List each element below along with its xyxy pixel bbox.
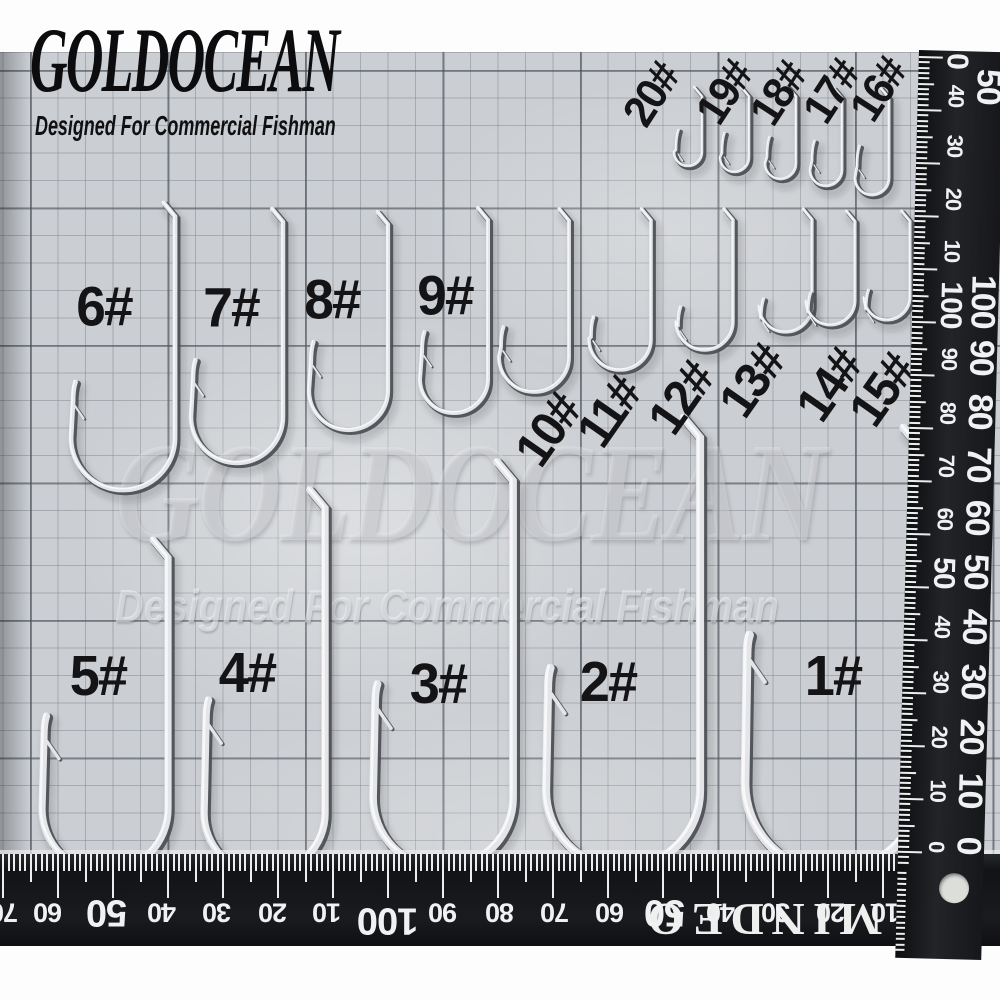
ruler-tick <box>420 854 422 871</box>
bottom-ruler-number: 60 <box>596 897 624 928</box>
ruler-tick <box>800 854 802 882</box>
ruler-tick <box>151 854 153 871</box>
ruler-tick <box>906 528 917 530</box>
ruler-tick <box>57 854 59 898</box>
ruler-tick <box>909 443 920 445</box>
ruler-tick <box>902 713 913 715</box>
fish-hook-15 <box>863 210 915 327</box>
ruler-tick <box>897 872 906 874</box>
ruler-tick <box>101 854 103 871</box>
ruler-tick <box>552 854 554 898</box>
ruler-tick <box>63 854 65 871</box>
ruler-tick <box>899 830 910 832</box>
ruler-tick <box>918 77 929 79</box>
ruler-tick <box>898 856 909 858</box>
ruler-tick <box>189 854 191 871</box>
ruler-tick <box>398 854 400 871</box>
ruler-tick <box>332 854 334 898</box>
ruler-tick <box>244 854 246 871</box>
ruler-tick <box>767 854 769 871</box>
ruler-tick <box>918 98 929 100</box>
ruler-tick <box>908 459 919 461</box>
ruler-tick <box>917 130 928 132</box>
hook-size-label-4: 4# <box>219 640 275 706</box>
ruler-tick <box>393 854 395 871</box>
ruler-tick <box>902 702 913 704</box>
ruler-tick <box>912 310 923 312</box>
ruler-tick <box>860 854 862 871</box>
ruler-tick <box>901 750 912 752</box>
ruler-tick <box>897 888 906 890</box>
ruler-tick <box>107 854 109 871</box>
ruler-tick <box>905 565 916 567</box>
ruler-tick <box>266 854 268 871</box>
ruler-tick <box>24 854 26 871</box>
ruler-tick <box>536 854 538 871</box>
ruler-tick <box>913 273 924 275</box>
ruler-tick <box>497 854 499 898</box>
ruler-tick <box>701 854 703 871</box>
ruler-tick <box>914 247 925 249</box>
ruler-tick <box>896 916 905 918</box>
ruler-tick <box>905 581 916 583</box>
right-ruler-edge-number: 50 <box>955 553 995 590</box>
ruler-tick <box>761 854 763 871</box>
ruler-tick <box>903 671 914 673</box>
ruler-tick <box>916 173 927 175</box>
ruler-tick <box>901 718 917 720</box>
ruler-tick <box>917 114 928 116</box>
ruler-tick <box>96 854 98 871</box>
ruler-tick <box>909 411 920 413</box>
ruler-tick <box>508 854 510 871</box>
ruler-tick <box>912 316 923 318</box>
ruler-tick <box>913 289 924 291</box>
right-ruler-number: 0 <box>940 53 974 70</box>
ruler-tick <box>908 485 919 487</box>
ruler-hang-hole <box>939 873 970 904</box>
hook-size-label-3: 3# <box>410 651 466 717</box>
ruler-tick <box>739 854 741 871</box>
ruler-tick <box>613 854 615 871</box>
bottom-ruler-number: 100 <box>358 899 418 942</box>
ruler-tick <box>910 390 921 392</box>
ruler-tick <box>673 854 675 871</box>
ruler-tick <box>911 353 922 355</box>
ruler-tick <box>908 469 919 471</box>
ruler-tick <box>907 522 918 524</box>
ruler-tick <box>750 854 752 871</box>
bottom-ruler-number: 70 <box>541 897 569 928</box>
ruler-tick <box>310 854 312 871</box>
ruler-tick <box>915 204 926 206</box>
ruler-tick <box>907 517 918 519</box>
ruler-tick <box>913 284 924 286</box>
ruler-tick <box>30 854 32 882</box>
ruler-tick <box>668 854 670 871</box>
ruler-tick <box>900 792 911 794</box>
ruler-tick <box>907 512 918 514</box>
ruler-tick <box>684 854 686 871</box>
ruler-tick <box>906 538 917 540</box>
ruler-tick <box>376 854 378 871</box>
ruler-tick <box>911 369 922 371</box>
ruler-tick <box>914 252 925 254</box>
ruler-tick <box>896 910 905 912</box>
ruler-tick <box>915 194 926 196</box>
ruler-tick <box>910 406 921 408</box>
ruler-tick <box>79 854 81 871</box>
ruler-tick <box>822 854 824 871</box>
right-ruler-number: 30 <box>927 670 954 693</box>
ruler-tick <box>904 633 915 635</box>
ruler-tick <box>899 803 910 805</box>
ruler-tick <box>74 854 76 871</box>
ruler-tick <box>167 854 169 898</box>
ruler-tick <box>90 854 92 871</box>
right-ruler-number: 80 <box>934 401 961 424</box>
ruler-tick <box>898 835 909 837</box>
ruler-tick <box>901 739 912 741</box>
ruler-tick <box>200 854 202 871</box>
ruler-tick <box>646 854 648 871</box>
ruler-tick <box>778 854 780 871</box>
ruler-tick <box>917 120 928 122</box>
ruler-tick <box>811 854 813 871</box>
ruler-tick <box>904 612 920 614</box>
ruler-tick <box>184 854 186 871</box>
ruler-tick <box>640 854 642 871</box>
bottom-ruler-number: 20 <box>259 897 287 928</box>
ruler-tick <box>563 854 565 871</box>
ruler-tick <box>129 854 131 871</box>
ruler-tick <box>882 854 884 898</box>
ruler-tick <box>629 854 631 871</box>
right-ruler-edge-number: 0 <box>948 836 987 855</box>
ruler-tick <box>909 437 920 439</box>
ruler-tick <box>261 854 263 871</box>
ruler-tick <box>35 854 37 871</box>
ruler-tick <box>897 894 906 896</box>
ruler-tick <box>123 854 125 871</box>
ruler-tick <box>437 854 439 871</box>
fish-hook-2 <box>544 416 705 875</box>
ruler-tick <box>299 854 301 871</box>
ruler-tick <box>255 854 257 871</box>
ruler-tick <box>618 854 620 871</box>
ruler-tick <box>789 854 791 871</box>
ruler-tick <box>904 628 915 630</box>
ruler-tick <box>222 854 224 898</box>
ruler-tick <box>900 782 911 784</box>
ruler-tick <box>68 854 70 871</box>
ruler-tick <box>905 602 916 604</box>
ruler-tick <box>903 649 914 651</box>
ruler-tick <box>897 905 906 907</box>
ruler-tick <box>897 899 906 901</box>
ruler-tick <box>145 854 147 871</box>
ruler-tick <box>492 854 494 871</box>
ruler-tick <box>233 854 235 871</box>
bottom-ruler-number: 20 <box>817 897 845 928</box>
ruler-tick <box>914 257 925 259</box>
ruler-tick <box>914 241 930 243</box>
ruler-tick <box>910 395 921 397</box>
ruler-tick <box>569 854 571 871</box>
ruler-tick <box>916 146 927 148</box>
ruler-tick <box>910 374 934 377</box>
fish-hook-10 <box>498 208 574 399</box>
ruler-tick <box>206 854 208 871</box>
right-ruler-edge-number: 100 <box>962 274 1000 329</box>
ruler-tick <box>906 554 917 556</box>
ruler-tick <box>855 854 857 882</box>
ruler-tick <box>900 755 911 757</box>
hook-size-label-5: 5# <box>70 643 126 709</box>
ruler-tick <box>902 697 913 699</box>
ruler-tick <box>140 854 142 882</box>
ruler-tick <box>901 724 912 726</box>
fish-hook-6 <box>70 202 180 497</box>
ruler-tick <box>912 331 923 333</box>
ruler-tick <box>305 854 307 882</box>
fish-hook-13 <box>758 208 817 339</box>
ruler-tick <box>918 93 929 95</box>
brand-logo: GOLDOCEAN Designed For Commercial Fishma… <box>30 14 575 106</box>
ruler-tick <box>903 676 914 678</box>
ruler-tick <box>909 422 920 424</box>
ruler-tick <box>464 854 466 871</box>
ruler-tick <box>888 854 890 871</box>
ruler-tick <box>908 475 919 477</box>
ruler-tick <box>558 854 560 871</box>
ruler-tick <box>156 854 158 871</box>
ruler-tick <box>918 88 929 90</box>
right-ruler-number: 10 <box>924 779 951 802</box>
right-ruler-number: 20 <box>926 725 953 748</box>
ruler-tick <box>85 854 87 882</box>
ruler-tick <box>712 854 714 871</box>
ruler-tick <box>783 854 785 871</box>
ruler-tick <box>917 135 933 137</box>
ruler-tick <box>585 854 587 871</box>
ruler-tick <box>651 854 653 871</box>
ruler-tick <box>525 854 527 882</box>
ruler-tick <box>905 596 916 598</box>
ruler-tick <box>250 854 252 882</box>
brand-tagline: Designed For Commercial Fishman <box>35 110 336 142</box>
right-ruler-number: 20 <box>940 187 967 210</box>
hook-size-label-6: 6# <box>76 274 131 339</box>
ruler-tick <box>877 854 879 871</box>
right-ruler-edge-number: 50 <box>968 68 1000 105</box>
ruler-tick <box>896 938 905 940</box>
ruler-tick <box>327 854 329 871</box>
ruler-tick <box>453 854 455 871</box>
bottom-ruler-number: 70 <box>0 897 18 928</box>
ruler-tick <box>902 681 913 683</box>
ruler-tick <box>893 854 895 871</box>
ruler-tick <box>905 570 916 572</box>
ruler-tick <box>838 854 840 871</box>
ruler-tick <box>913 279 924 281</box>
product-photo-stage: GOLDOCEAN Designed For Commercial Fishma… <box>0 0 1000 1000</box>
ruler-tick <box>448 854 450 871</box>
ruler-tick <box>13 854 15 871</box>
bottom-ruler-number: 60 <box>34 897 62 928</box>
ruler-tick <box>46 854 48 871</box>
ruler-tick <box>706 854 708 871</box>
ruler-tick <box>914 220 925 222</box>
ruler-tick <box>382 854 384 871</box>
ruler-tick <box>902 708 913 710</box>
ruler-tick <box>898 851 922 854</box>
ruler-tick <box>919 67 930 69</box>
ruler-tick <box>871 854 873 871</box>
ruler-tick <box>899 819 910 821</box>
ruler-tick <box>321 854 323 871</box>
ruler-tick <box>365 854 367 871</box>
ruler-tick <box>904 607 915 609</box>
ruler-tick <box>387 854 389 898</box>
right-ruler-number: 0 <box>923 841 949 853</box>
ruler-tick <box>349 854 351 871</box>
right-ruler-number: 10 <box>938 239 965 262</box>
ruler-tick <box>901 729 912 731</box>
ruler-tick <box>833 854 835 871</box>
ruler-tick <box>19 854 21 871</box>
ruler-tick <box>459 854 461 871</box>
bottom-ruler-number: 80 <box>486 897 514 928</box>
ruler-tick <box>917 109 941 112</box>
ruler-tick <box>914 231 925 233</box>
ruler-tick <box>134 854 136 871</box>
ruler-tick <box>913 263 924 265</box>
ruler-tick <box>338 854 340 871</box>
ruler-tick <box>918 82 934 84</box>
right-ruler-edge-number: 20 <box>951 718 991 755</box>
brand-name: GOLDOCEAN <box>30 14 338 106</box>
bottom-ruler-number: 40 <box>148 897 176 928</box>
ruler-tick <box>909 427 933 430</box>
ruler-tick <box>900 777 911 779</box>
ruler-tick <box>343 854 345 871</box>
ruler-tick <box>470 854 472 882</box>
ruler-tick <box>228 854 230 871</box>
right-ruler-edge-number: 40 <box>954 608 994 645</box>
ruler-tick <box>896 927 905 929</box>
ruler-tick <box>898 840 909 842</box>
ruler-tick <box>371 854 373 871</box>
ruler-tick <box>849 854 851 871</box>
ruler-tick <box>912 305 923 307</box>
hook-size-label-7: 7# <box>203 275 258 340</box>
ruler-tick <box>239 854 241 871</box>
ruler-tick <box>503 854 505 871</box>
ruler-tick <box>602 854 604 871</box>
ruler-tick <box>915 215 939 218</box>
ruler-tick <box>910 400 926 402</box>
ruler-tick <box>896 921 905 923</box>
ruler-tick <box>900 771 916 773</box>
ruler-tick <box>901 734 912 736</box>
ruler-tick <box>794 854 796 871</box>
ruler-tick <box>897 883 906 885</box>
ruler-tick <box>906 543 917 545</box>
ruler-tick <box>431 854 433 871</box>
ruler-tick <box>918 104 929 106</box>
hook-size-label-1: 1# <box>805 643 861 709</box>
ruler-tick <box>2 854 4 898</box>
ruler-tick <box>475 854 477 871</box>
ruler-tick <box>596 854 598 871</box>
ruler-tick <box>906 559 922 561</box>
ruler-tick <box>906 533 930 536</box>
ruler-tick <box>827 854 829 898</box>
ruler-tick <box>541 854 543 871</box>
right-ruler-edge-number: 60 <box>957 499 997 536</box>
ruler-tick <box>916 162 940 165</box>
ruler-tick <box>903 655 914 657</box>
right-ruler-edge-number: 30 <box>953 663 993 700</box>
ruler-tick <box>118 854 120 871</box>
right-ruler-edge-number: 70 <box>958 446 998 483</box>
ruler-tick <box>916 167 927 169</box>
ruler-tick <box>294 854 296 871</box>
right-ruler-number: 60 <box>931 507 958 530</box>
ruler-tick <box>409 854 411 871</box>
ruler-tick <box>283 854 285 871</box>
ruler-tick <box>899 798 923 801</box>
ruler-tick <box>442 854 444 898</box>
bottom-ruler-number: 10 <box>313 897 341 928</box>
ruler-tick <box>908 480 932 483</box>
bottom-ruler: MINDEO 706050403020101009080706050403020… <box>0 854 1000 946</box>
ruler-tick <box>905 575 916 577</box>
ruler-tick <box>914 236 925 238</box>
ruler-tick <box>909 416 920 418</box>
ruler-tick <box>907 496 918 498</box>
hook-size-label-2: 2# <box>580 649 636 715</box>
ruler-tick <box>211 854 213 871</box>
ruler-tick <box>907 506 923 508</box>
ruler-tick <box>900 787 911 789</box>
ruler-tick <box>519 854 521 871</box>
ruler-tick <box>404 854 406 871</box>
ruler-tick <box>910 384 921 386</box>
ruler-tick <box>217 854 219 871</box>
right-ruler-number: 30 <box>941 134 968 157</box>
ruler-tick <box>909 432 920 434</box>
ruler-tick <box>844 854 846 871</box>
ruler-tick <box>907 490 918 492</box>
ruler-tick <box>734 854 736 871</box>
ruler-tick <box>756 854 758 871</box>
ruler-tick <box>911 342 922 344</box>
fish-hook-12 <box>675 208 738 357</box>
bottom-ruler-number: 30 <box>762 897 790 928</box>
ruler-tick <box>910 379 921 381</box>
bottom-white-margin <box>0 946 1000 1000</box>
ruler-tick <box>919 61 930 63</box>
ruler-tick <box>178 854 180 871</box>
ruler-tick <box>426 854 428 871</box>
ruler-tick <box>915 199 926 201</box>
ruler-tick <box>911 347 927 349</box>
ruler-tick <box>916 157 927 159</box>
ruler-tick <box>904 618 915 620</box>
ruler-tick <box>624 854 626 871</box>
